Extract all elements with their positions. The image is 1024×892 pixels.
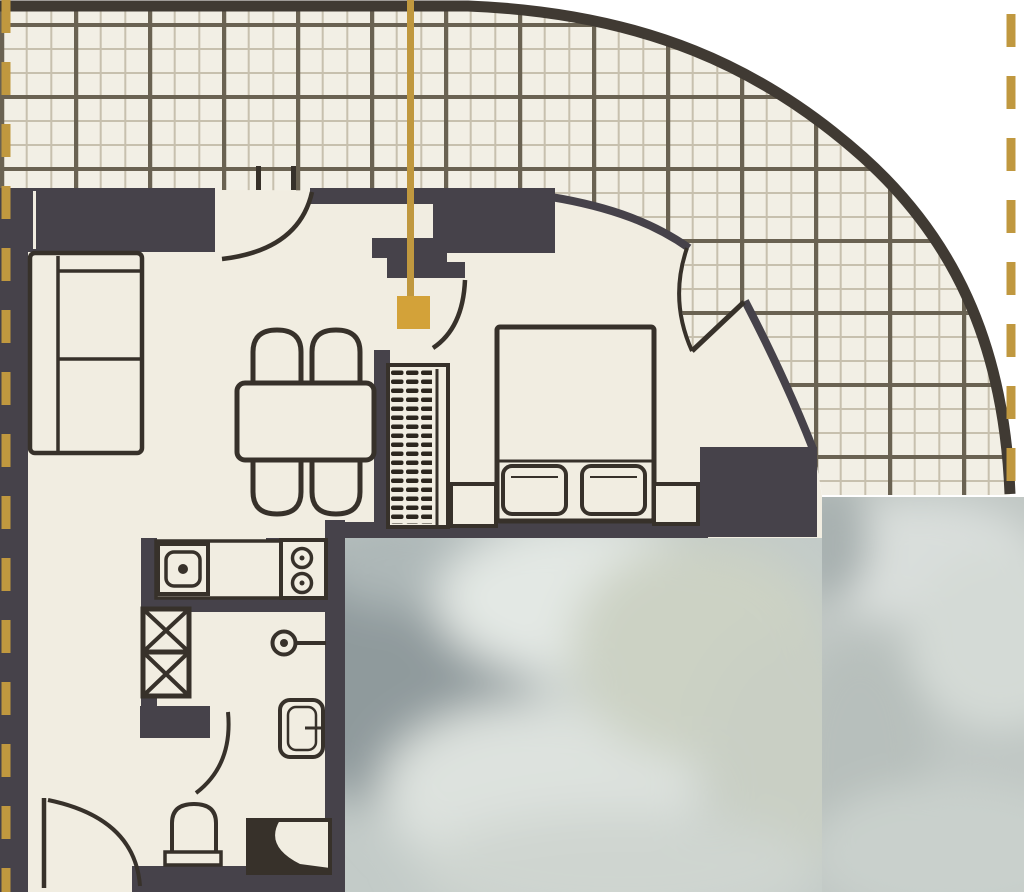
- kitchen-counter: [156, 540, 326, 598]
- washbasin-icon: [280, 700, 324, 757]
- wall-joint-seam: [33, 191, 36, 249]
- pillow-left-icon: [503, 466, 566, 514]
- shower-unit-icon: [248, 820, 330, 873]
- floor-plan-canvas: [0, 0, 1024, 892]
- wardrobe-icon: [388, 365, 448, 527]
- nightstand-right-icon: [654, 484, 698, 524]
- vent-shaft-icons: [143, 609, 189, 696]
- kitchen-sink-icon: [158, 544, 208, 594]
- inner-bathroom-wall: [140, 706, 210, 738]
- privacy-blur-right: [790, 480, 1024, 892]
- toilet-icon: [165, 804, 221, 865]
- floor-plan-svg: [0, 0, 1024, 892]
- marker-line: [407, 0, 414, 298]
- marker-square: [397, 296, 430, 329]
- column-block-top: [433, 188, 555, 253]
- stove-icon: [281, 540, 326, 598]
- sofa-icon: [30, 253, 142, 453]
- double-bed-icon: [497, 327, 654, 521]
- terrace-door-jamb-right: [291, 166, 296, 190]
- nightstand-left-icon: [451, 484, 496, 526]
- dining-table-icon: [237, 383, 374, 460]
- top-wall-center: [310, 188, 433, 204]
- pillow-right-icon: [582, 466, 645, 514]
- terrace-door-jamb-left: [256, 166, 261, 190]
- top-wall-left: [22, 188, 215, 252]
- left-exterior-wall: [0, 188, 28, 892]
- privacy-blur-center: [260, 510, 880, 892]
- column-block-bedroom: [700, 447, 817, 537]
